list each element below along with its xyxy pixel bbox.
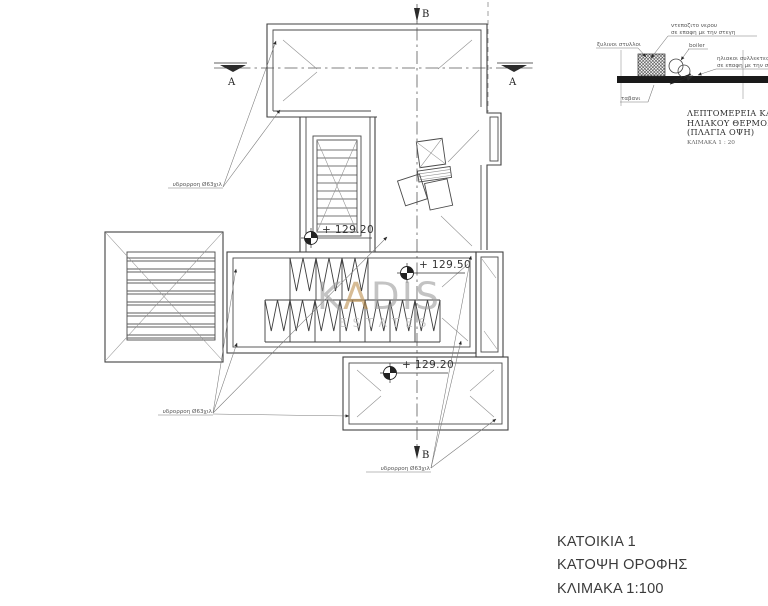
detail-title: ΛΕΠΤΟΜΕΡΕΙΑ ΚΑΛΥΨ ΗΛΙΑΚΟΥ ΘΕΡΜΟΣΥΦΩ (ΠΛΑ… <box>686 108 768 146</box>
downspout-label-1: υδρορροη Ø63χιλ <box>173 181 223 188</box>
detail-title-line-3: (ΠΛΑΓΙΑ ΟΨΗ) <box>687 127 754 137</box>
drawing-sheet: B B A A + 129.20 + 129.50 <box>0 0 768 606</box>
detail-label-boiler: boiler <box>689 43 706 49</box>
solar-panel-group <box>398 138 453 210</box>
section-marker-b-bottom: B <box>414 446 429 461</box>
section-marker-b-top: B <box>414 8 429 22</box>
detail-label-slab: ταβανι <box>621 96 640 102</box>
section-letter-a-left: A <box>227 77 236 88</box>
left-pergola-roof <box>105 232 223 362</box>
detail-drawing: ντεποζιτο νερου σε επαφη με την στεγη ξυ… <box>596 23 768 146</box>
floor-plan-svg: B B A A + 129.20 + 129.50 <box>0 0 768 606</box>
detail-label-posts: ξυλινοι στυλλοι <box>597 42 641 48</box>
project-name: ΚΑΤΟΙΚΙΑ 1 <box>557 531 688 554</box>
section-letter-b-top: B <box>422 9 429 20</box>
section-marker-a-right: A <box>497 63 533 88</box>
detail-label-collectors-2: σε επαφη με την στεγη <box>717 63 768 69</box>
top-wing-roof <box>267 24 501 250</box>
louvers <box>127 258 215 338</box>
watermark-kadis: KADIS <box>317 275 441 318</box>
downspout-label-3: υδρορροη Ø63χιλ <box>381 465 431 472</box>
detail-roof-slab <box>617 76 768 83</box>
detail-title-line-1: ΛΕΠΤΟΜΕΡΕΙΑ ΚΑΛΥΨ <box>686 108 768 118</box>
level-value-3: + 129.20 <box>402 359 454 371</box>
watermark-estates: ESTATES <box>339 316 432 330</box>
section-marker-a-left: A <box>214 63 247 88</box>
level-value-2: + 129.50 <box>419 259 471 271</box>
downspout-annotations: υδρορροη Ø63χιλ υδρορροη Ø63χιλ υδρορροη… <box>158 41 496 472</box>
detail-label-tank-1: ντεποζιτο νερου <box>671 23 717 29</box>
detail-scale: ΚΛΙΜΑΚΑ 1 : 20 <box>687 140 735 146</box>
detail-label-tank-2: σε επαφη με την στεγη <box>671 30 736 36</box>
right-room-roof <box>476 252 503 357</box>
project-title-block: ΚΑΤΟΙΚΙΑ 1 ΚΑΤΟΨΗ ΟΡΟΦΗΣ ΚΛΙΜΑΚΑ 1:100 <box>557 531 688 601</box>
detail-label-collectors-1: ηλιακοι συλλεκτες <box>717 56 768 62</box>
level-value-1: + 129.20 <box>322 224 374 236</box>
drawing-name: ΚΑΤΟΨΗ ΟΡΟΦΗΣ <box>557 554 688 577</box>
downspout-label-2: υδρορροη Ø63χιλ <box>163 408 213 415</box>
section-letter-b-bottom: B <box>422 450 429 461</box>
drawing-scale: ΚΛΙΜΑΚΑ 1:100 <box>557 578 688 601</box>
section-letter-a-right: A <box>508 77 517 88</box>
stair-run <box>313 136 361 236</box>
